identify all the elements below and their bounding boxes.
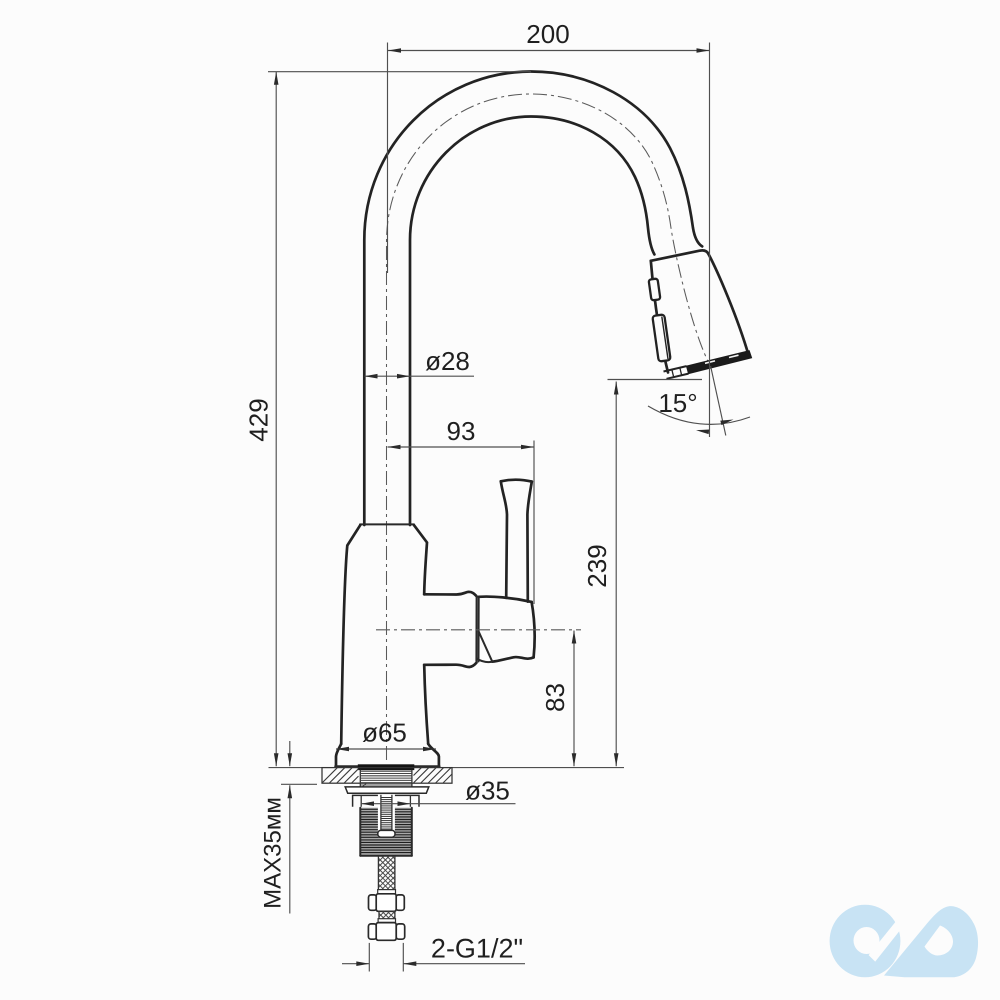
svg-text:ø28: ø28 — [425, 346, 470, 376]
svg-text:MAX35мм: MAX35мм — [260, 797, 287, 909]
svg-text:83: 83 — [540, 683, 570, 712]
svg-text:15°: 15° — [658, 388, 697, 418]
svg-text:ø35: ø35 — [465, 776, 510, 806]
svg-text:93: 93 — [447, 416, 476, 446]
svg-text:ø65: ø65 — [362, 718, 407, 748]
svg-text:239: 239 — [582, 544, 612, 587]
svg-text:429: 429 — [244, 398, 274, 441]
svg-text:2-G1/2": 2-G1/2" — [431, 934, 523, 964]
svg-text:200: 200 — [526, 19, 569, 49]
